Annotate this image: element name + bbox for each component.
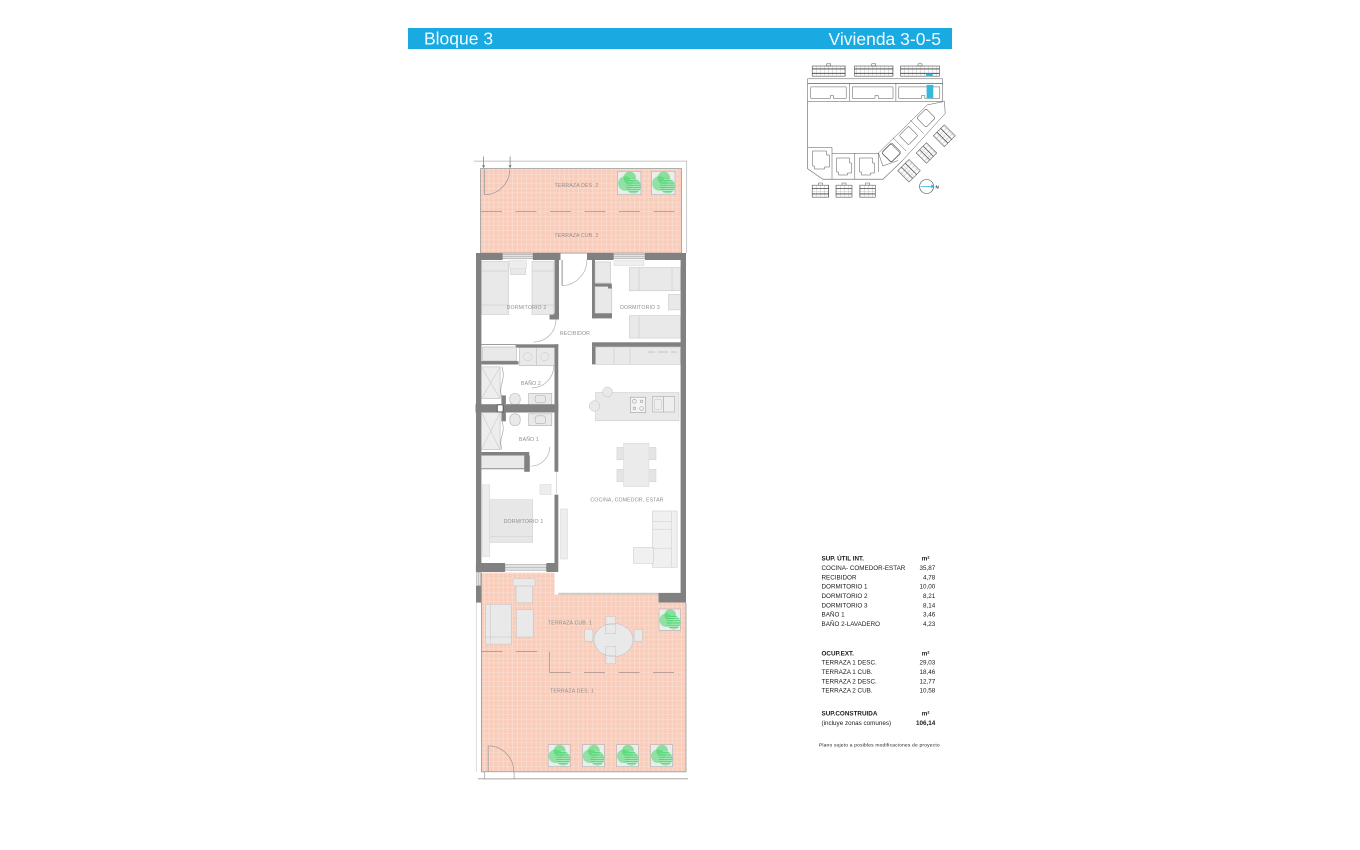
svg-text:m²: m² [922, 556, 930, 563]
svg-text:4,78: 4,78 [923, 574, 936, 581]
svg-text:DORMITORIO 2: DORMITORIO 2 [822, 593, 869, 600]
svg-text:m²: m² [922, 711, 930, 718]
svg-text:DORMITORIO 3: DORMITORIO 3 [620, 305, 660, 311]
svg-text:TERRAZA DES. 2: TERRAZA DES. 2 [555, 183, 599, 189]
svg-text:BAÑO 1: BAÑO 1 [822, 610, 846, 619]
svg-text:BAÑO 2-LAVADERO: BAÑO 2-LAVADERO [822, 619, 881, 628]
svg-text:8,21: 8,21 [923, 593, 936, 600]
svg-text:SUP. ÚTIL INT.: SUP. ÚTIL INT. [822, 554, 865, 563]
svg-text:TERRAZA DES. 1: TERRAZA DES. 1 [550, 689, 594, 695]
svg-text:RECIBIDOR: RECIBIDOR [560, 331, 590, 337]
svg-text:OCUP.EXT.: OCUP.EXT. [822, 650, 855, 657]
svg-text:DORMITORIO 1: DORMITORIO 1 [504, 519, 544, 525]
svg-text:18,46: 18,46 [920, 669, 936, 676]
svg-text:m²: m² [922, 650, 930, 657]
svg-text:SUP.CONSTRUIDA: SUP.CONSTRUIDA [822, 711, 878, 718]
svg-text:DORMITORIO 1: DORMITORIO 1 [822, 584, 869, 591]
svg-text:3,46: 3,46 [923, 612, 936, 619]
svg-text:COCINA, COMEDOR, ESTAR: COCINA, COMEDOR, ESTAR [590, 497, 663, 503]
svg-text:TERRAZA CUB. 1: TERRAZA CUB. 1 [548, 620, 592, 626]
svg-text:10,58: 10,58 [920, 688, 936, 695]
svg-text:TERRAZA 1 CUB.: TERRAZA 1 CUB. [822, 669, 873, 676]
svg-text:Bloque 3: Bloque 3 [424, 29, 493, 49]
svg-text:COCINA- COMEDOR-ESTAR: COCINA- COMEDOR-ESTAR [822, 565, 906, 572]
svg-text:DORMITORIO 3: DORMITORIO 3 [822, 602, 869, 609]
svg-text:12,77: 12,77 [920, 678, 936, 685]
svg-text:(incluye zonas comunes): (incluye zonas comunes) [822, 720, 892, 727]
svg-text:8,14: 8,14 [923, 602, 936, 609]
svg-text:TERRAZA 2 DESC.: TERRAZA 2 DESC. [822, 678, 878, 685]
svg-text:Plano sujeto a posibles modifi: Plano sujeto a posibles modificaciones d… [819, 742, 940, 748]
svg-text:RECIBIDOR: RECIBIDOR [822, 574, 857, 581]
svg-text:DORMITORIO 2: DORMITORIO 2 [507, 305, 547, 311]
svg-text:TERRAZA 2 CUB.: TERRAZA 2 CUB. [822, 688, 873, 695]
svg-text:BAÑO 2: BAÑO 2 [521, 380, 541, 387]
svg-text:106,14: 106,14 [916, 720, 936, 727]
svg-text:10,00: 10,00 [920, 584, 936, 591]
svg-text:TERRAZA 1 DESC.: TERRAZA 1 DESC. [822, 660, 878, 667]
svg-text:35,87: 35,87 [920, 565, 936, 572]
svg-text:TERRAZA CUB. 2: TERRAZA CUB. 2 [554, 233, 598, 239]
svg-text:4,23: 4,23 [923, 621, 936, 628]
svg-text:Vivienda 3-0-5: Vivienda 3-0-5 [828, 29, 941, 49]
svg-text:BAÑO 1: BAÑO 1 [519, 436, 539, 443]
svg-text:29,03: 29,03 [920, 660, 936, 667]
